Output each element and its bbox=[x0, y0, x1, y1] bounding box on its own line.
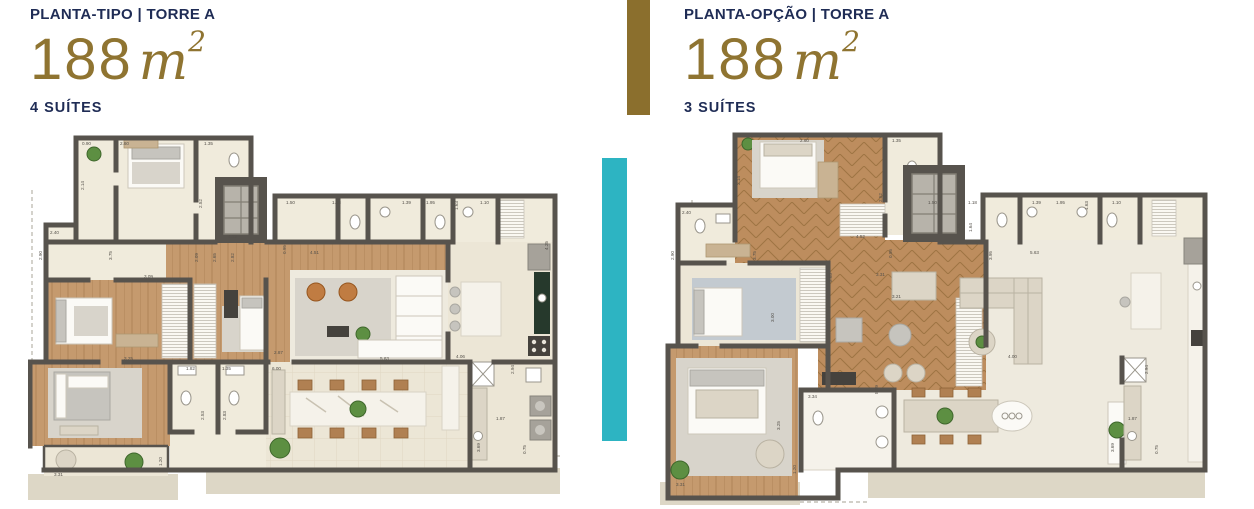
dimension-label: 3.25 bbox=[124, 356, 133, 361]
dimension-label: 1.63 bbox=[454, 201, 459, 210]
armchair bbox=[884, 364, 902, 382]
plan-type-title: PLANTA-OPÇÃO | TORRE A bbox=[684, 6, 890, 23]
dimension-label: 0.90 bbox=[82, 141, 91, 146]
dimension-label: 1.50 bbox=[928, 200, 937, 205]
master-bedroom bbox=[48, 368, 142, 438]
toilet bbox=[435, 215, 445, 229]
bbq-counter bbox=[272, 370, 285, 434]
suites-label: 4 SUÍTES bbox=[30, 100, 215, 116]
dimension-label: 2.83 bbox=[222, 411, 227, 420]
wardrobe bbox=[800, 268, 826, 342]
dimension-label: 2.52 bbox=[878, 193, 883, 202]
area-exponent: 2 bbox=[842, 25, 860, 58]
lounge-chair bbox=[56, 450, 76, 470]
dimension-label: 2.94 bbox=[510, 365, 515, 374]
wardrobe bbox=[194, 284, 216, 358]
sink bbox=[876, 406, 888, 418]
toilet bbox=[350, 215, 360, 229]
dimension-label: 4.12 bbox=[228, 234, 237, 239]
dimension-label: 3.25 bbox=[776, 421, 781, 430]
dimension-label: 0.75 bbox=[522, 445, 527, 454]
dimension-label: 8.09 bbox=[874, 385, 879, 394]
plan-type-title: PLANTA-TIPO | TORRE A bbox=[30, 6, 215, 23]
dimension-label: 1.18 bbox=[968, 200, 977, 205]
oval-table bbox=[992, 401, 1032, 431]
dimension-label: 6.00 bbox=[272, 366, 281, 371]
dimension-label: 4.51 bbox=[310, 250, 319, 255]
armchair bbox=[307, 283, 325, 301]
dimension-label: 2.87 bbox=[274, 350, 283, 355]
dimension-label: 2.52 bbox=[198, 199, 203, 208]
bench bbox=[60, 426, 98, 435]
dimension-label: 2.65 bbox=[828, 273, 833, 282]
desk bbox=[116, 334, 158, 347]
dimension-label: 3.21 bbox=[892, 294, 901, 299]
dimension-label: 3.69 bbox=[476, 443, 481, 452]
dimension-label: 1.10 bbox=[480, 200, 489, 205]
sink bbox=[463, 207, 473, 217]
plant bbox=[356, 327, 370, 341]
stool bbox=[450, 321, 460, 331]
plant bbox=[671, 461, 689, 479]
panel-header-planta-tipo: PLANTA-TIPO | TORRE A 188m2 4 SUÍTES bbox=[30, 6, 215, 116]
toilet bbox=[229, 391, 239, 405]
dimension-label: 2.40 bbox=[50, 230, 59, 235]
stool bbox=[450, 287, 460, 297]
stool bbox=[1120, 297, 1130, 307]
dimension-label: 2.40 bbox=[682, 210, 691, 215]
closet bbox=[1152, 200, 1176, 236]
closet bbox=[500, 200, 524, 238]
dimension-label: 0.75 bbox=[1154, 445, 1159, 454]
counter-green bbox=[534, 272, 550, 334]
dimension-label: 4.06 bbox=[456, 354, 465, 359]
counter bbox=[1188, 248, 1205, 462]
area-unit: m bbox=[793, 32, 842, 92]
floorplan-planta-opcao: 2.60 1.35 2.14 2.52 2.40 3.75 4.52 1.50 … bbox=[660, 130, 1213, 505]
toilet bbox=[695, 219, 705, 233]
toilet bbox=[997, 213, 1007, 227]
dimension-label: 3.34 bbox=[808, 394, 817, 399]
dimension-label: 1.64 bbox=[968, 223, 973, 232]
stool bbox=[450, 304, 460, 314]
master-suite bbox=[671, 358, 792, 479]
dimension-label: 5.63 bbox=[1030, 250, 1039, 255]
cooktop bbox=[1191, 330, 1203, 346]
dimension-label: 3.09 bbox=[144, 274, 153, 279]
island bbox=[1131, 273, 1161, 329]
armchair bbox=[907, 364, 925, 382]
dimension-label: 1.87 bbox=[496, 416, 505, 421]
dimension-label: 1.35 bbox=[892, 138, 901, 143]
island bbox=[461, 282, 501, 336]
dimension-label: 1.61 bbox=[956, 223, 961, 232]
dimension-label: 2.65 bbox=[212, 253, 217, 262]
dimension-label: 2.60 bbox=[800, 138, 809, 143]
dimension-label: 4.00 bbox=[1008, 354, 1017, 359]
laundry-sink bbox=[526, 368, 541, 382]
dimension-label: 4.25 bbox=[544, 241, 549, 250]
dimension-label: 2.94 bbox=[1144, 365, 1149, 374]
area-value: 188 bbox=[30, 27, 133, 92]
dimension-label: 2.90 bbox=[670, 251, 675, 260]
toilet bbox=[1107, 213, 1117, 227]
area-figure: 188m2 bbox=[684, 29, 890, 86]
dimension-label: 2.82 bbox=[230, 253, 235, 262]
dimension-label: 3.31 bbox=[54, 472, 63, 477]
teal-divider-bar bbox=[602, 158, 627, 441]
dimension-label: 1.10 bbox=[1112, 200, 1121, 205]
dimension-label: 3.00 bbox=[770, 313, 775, 322]
armchair bbox=[339, 283, 357, 301]
area-exponent: 2 bbox=[188, 25, 206, 58]
bed bbox=[688, 368, 766, 434]
living-room bbox=[295, 276, 442, 358]
cooktop bbox=[528, 336, 550, 356]
terrace-counter bbox=[442, 366, 459, 430]
panel-header-planta-opcao: PLANTA-OPÇÃO | TORRE A 188m2 3 SUÍTES bbox=[684, 6, 890, 116]
area-unit: m bbox=[139, 32, 188, 92]
dimension-label: 1.82 bbox=[186, 366, 195, 371]
suites-label: 3 SUÍTES bbox=[684, 100, 890, 116]
refrigerator bbox=[1184, 238, 1205, 264]
plant bbox=[270, 438, 290, 458]
dimension-label: 1.35 bbox=[222, 366, 231, 371]
wardrobe bbox=[840, 204, 885, 236]
dimension-label: 2.14 bbox=[80, 181, 85, 190]
toilet bbox=[181, 391, 191, 405]
dimension-label: 1.35 bbox=[204, 141, 213, 146]
sink bbox=[380, 207, 390, 217]
plant bbox=[1109, 422, 1125, 438]
centerpiece-plant bbox=[350, 401, 366, 417]
round-chair bbox=[756, 440, 784, 468]
dimension-label: 3.31 bbox=[676, 482, 685, 487]
dimension-label: 2.60 bbox=[120, 141, 129, 146]
sink bbox=[1193, 282, 1201, 290]
dimension-label: 0.95 bbox=[888, 249, 893, 258]
dimension-label: 1.20 bbox=[158, 457, 163, 466]
dimension-label: 0.95 bbox=[282, 245, 287, 254]
dimension-label: 1.63 bbox=[1084, 201, 1089, 210]
floorplan-planta-tipo: 0.90 2.60 1.35 2.14 2.52 2.40 3.75 4.12 … bbox=[28, 130, 560, 502]
centerpiece-plant bbox=[937, 408, 953, 424]
dimension-label: 1.87 bbox=[1128, 416, 1137, 421]
toilet bbox=[813, 411, 823, 425]
sink bbox=[1027, 207, 1037, 217]
dimension-label: 1.39 bbox=[402, 200, 411, 205]
dimension-label: 2.90 bbox=[38, 251, 43, 260]
gold-accent-bar bbox=[627, 0, 650, 115]
tv-cabinet bbox=[224, 290, 238, 318]
dimension-label: 1.95 bbox=[1056, 200, 1065, 205]
elevator-shaft bbox=[215, 177, 267, 243]
desk bbox=[818, 162, 838, 198]
dimension-label: 3.95 bbox=[988, 251, 993, 260]
chaise bbox=[358, 340, 442, 358]
laundry-counter bbox=[1124, 386, 1141, 460]
dimension-label: 3.69 bbox=[1110, 443, 1115, 452]
plant bbox=[87, 147, 101, 161]
area-figure: 188m2 bbox=[30, 29, 215, 86]
dimension-label: 3.75 bbox=[752, 251, 757, 260]
sink bbox=[876, 436, 888, 448]
desk bbox=[706, 244, 750, 257]
bed bbox=[128, 144, 184, 188]
sink bbox=[716, 214, 730, 223]
dimension-label: 4.52 bbox=[856, 234, 865, 239]
toilet bbox=[229, 153, 239, 167]
dimension-label: 3.75 bbox=[108, 251, 113, 260]
coffee-table bbox=[889, 324, 911, 346]
dimension-label: 2.09 bbox=[194, 253, 199, 262]
coffee-table bbox=[327, 326, 349, 337]
dimension-label: 2.53 bbox=[200, 411, 205, 420]
sink bbox=[538, 294, 546, 302]
floorplan-brochure: PLANTA-TIPO | TORRE A 188m2 4 SUÍTES PLA… bbox=[0, 0, 1254, 509]
dimension-label: 1.50 bbox=[286, 200, 295, 205]
bed bbox=[54, 372, 110, 420]
dimension-label: 1.95 bbox=[426, 200, 435, 205]
dimension-label: 1.39 bbox=[1032, 200, 1041, 205]
bed bbox=[752, 140, 824, 198]
area-value: 188 bbox=[684, 27, 787, 92]
ottoman bbox=[836, 318, 862, 342]
dimension-label: 1.18 bbox=[332, 200, 341, 205]
dimension-label: 1.20 bbox=[792, 465, 797, 474]
dimension-label: 2.14 bbox=[736, 176, 741, 185]
dimension-label: 5.63 bbox=[380, 356, 389, 361]
wardrobe bbox=[162, 284, 188, 358]
dimension-label: 3.31 bbox=[876, 272, 885, 277]
desk bbox=[124, 140, 158, 148]
